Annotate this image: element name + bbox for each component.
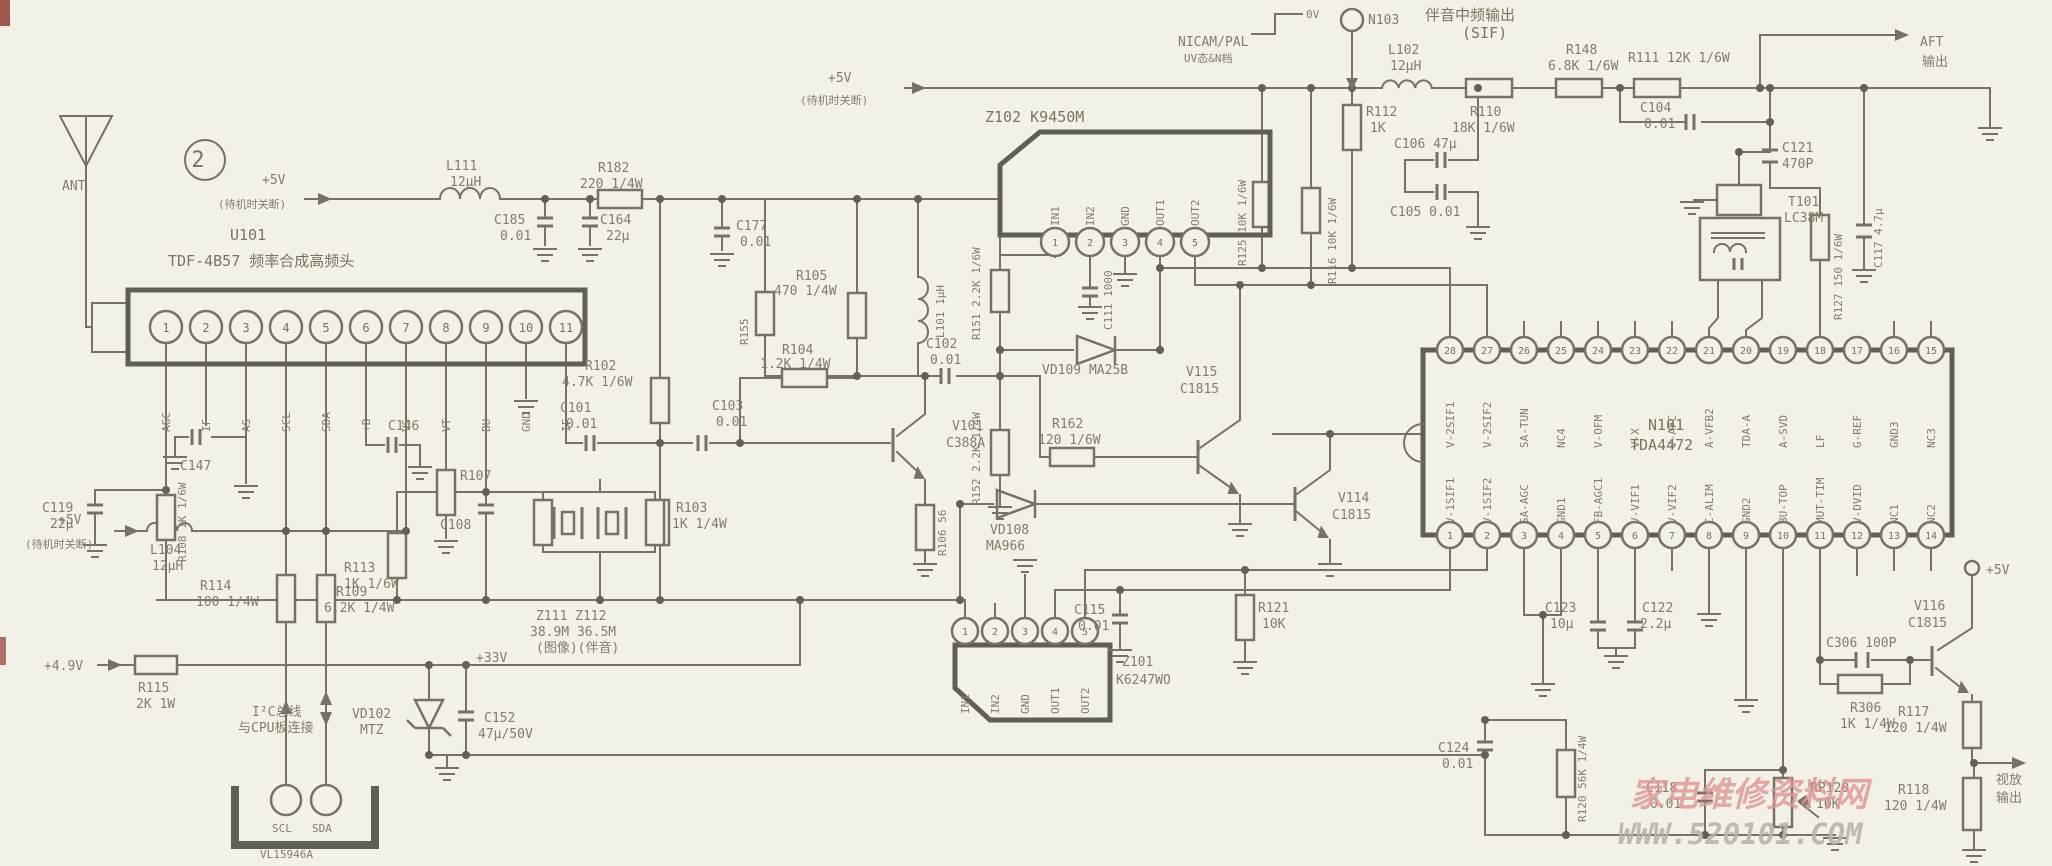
label-l102: L102 <box>1388 43 1419 58</box>
crystal-Z111 <box>554 507 582 539</box>
label-c111: C111 1000 <box>1102 270 1115 330</box>
label-c306: C306 100P <box>1826 636 1897 651</box>
n101-pin-name: V-1SIF2 <box>1481 478 1494 524</box>
tuner-pin-name: +B <box>360 418 373 432</box>
tuner-pin-num: 7 <box>402 321 409 335</box>
watermark-site: 家电维修资料网 <box>1630 775 1873 815</box>
label-r107: R107 <box>460 469 491 484</box>
label-r117: R117 <box>1898 705 1929 720</box>
i2c-connector <box>235 786 375 845</box>
label-r104: R104 <box>782 343 813 358</box>
video-out-label: 输出 <box>1996 790 2022 806</box>
label-r103: R103 <box>676 501 707 516</box>
figure-number: 2 <box>191 148 204 173</box>
n101-pin-num: 5 <box>1595 531 1601 542</box>
zener-VD102 <box>407 700 451 736</box>
label-c124: C124 <box>1438 741 1469 756</box>
label-v116: V116 <box>1914 599 1945 614</box>
label-c164: 22μ <box>606 229 630 244</box>
label-r121: 10K <box>1262 617 1286 632</box>
label-c115: 0.01 <box>1078 619 1109 634</box>
resistor-R110 <box>1466 79 1512 97</box>
label-r104: 1.2K 1/4W <box>760 357 831 372</box>
aft-label: 输出 <box>1922 54 1948 70</box>
n101-pin-num: 10 <box>1777 531 1789 542</box>
connector-pin-sda <box>311 785 341 815</box>
label-c106: C106 47μ <box>1394 137 1457 152</box>
n101-pin-num: 1 <box>1447 531 1453 542</box>
resistor-R182 <box>598 190 642 208</box>
n101-pin-name: C-ALIM <box>1703 484 1716 524</box>
label-c108: C108 <box>440 518 471 533</box>
label-vd102: VD102 <box>352 707 391 722</box>
n101-pin-num: 9 <box>1743 531 1749 542</box>
label-z102: Z102 K9450M <box>985 108 1084 126</box>
n101-pin-name: GND3 <box>1888 422 1901 449</box>
label-r151: R151 2.2K 1/6W <box>970 247 983 340</box>
resistor-R152 <box>991 430 1009 475</box>
label-r112: R112 <box>1366 105 1397 120</box>
label-z101: K6247WO <box>1116 673 1171 688</box>
diode-VD109 <box>1077 336 1115 364</box>
n101-pin-num: 16 <box>1888 346 1900 357</box>
label-l102: 12μH <box>1390 59 1421 74</box>
n101-pin-name: MUT-TIM <box>1814 477 1827 524</box>
tuner-pin-name: SCL <box>280 412 293 432</box>
n101-pin-num: 21 <box>1703 346 1715 357</box>
label-r127: R127 150 1/6W <box>1832 234 1845 320</box>
label-r162: 120 1/6W <box>1038 433 1101 448</box>
label-xtal: (图像)(伴音) <box>536 640 619 656</box>
n101-pin-name: NC4 <box>1555 428 1568 448</box>
n101-pin-name: SA-TUN <box>1518 408 1531 448</box>
z101-pin-name: GND <box>1019 694 1032 714</box>
resistor-R151 <box>991 270 1009 312</box>
n101-pin-num: 7 <box>1669 531 1675 542</box>
label-c101: C101 <box>560 401 591 416</box>
z101-pin-name: OUT1 <box>1049 688 1062 715</box>
n101-pin-num: 25 <box>1555 346 1567 357</box>
n101-pin-name: V-VIF1 <box>1629 484 1642 524</box>
resistor-R115 <box>135 656 177 674</box>
label-c115: C115 <box>1074 603 1105 618</box>
n101-pin-num: 17 <box>1851 346 1863 357</box>
resistor-R148 <box>1556 79 1602 97</box>
resistor-R112 <box>1343 105 1361 150</box>
n101-pin-name: V-2SIF1 <box>1444 402 1457 448</box>
n101-pin-num: 23 <box>1629 346 1641 357</box>
label-t101: LC38M <box>1784 211 1823 226</box>
arrows <box>108 29 2026 769</box>
n103-label: N103 <box>1368 13 1399 28</box>
label-r111: R111 12K 1/6W <box>1628 51 1730 66</box>
components <box>135 79 1981 830</box>
n101-pin-num: 27 <box>1481 346 1493 357</box>
n101-pin-num: 12 <box>1851 531 1863 542</box>
label-vd108: MA966 <box>986 539 1025 554</box>
sif-label: 伴音中频输出 <box>1425 6 1515 24</box>
z102-pin-num: 2 <box>1087 238 1093 249</box>
n101-pin-name: FB-AGC1 <box>1592 478 1605 524</box>
aft-label: AFT <box>1920 35 1944 50</box>
label-c147: C147 <box>180 459 211 474</box>
tuner-pin-name: GND <box>520 412 533 432</box>
label-c102: 0.01 <box>930 353 961 368</box>
inductor-L102 <box>1382 80 1432 88</box>
n101-pin-num: 15 <box>1925 346 1937 357</box>
n101-pin-name: A-SVD <box>1777 415 1790 448</box>
tuner-pin-num: 3 <box>242 321 249 335</box>
label-r112: 1K <box>1370 121 1386 136</box>
label-vd109: VD109 MA25B <box>1042 363 1128 378</box>
tuner-pin-num: 4 <box>282 321 289 335</box>
label-r110: R110 <box>1470 105 1501 120</box>
resistor-R118 <box>1963 778 1981 830</box>
resistor-R117 <box>1963 702 1981 748</box>
antenna-symbol <box>60 116 112 327</box>
label-c105: C105 0.01 <box>1390 205 1460 220</box>
z102-pin-name: IN1 <box>1049 206 1062 226</box>
label-r113: R113 <box>344 561 375 576</box>
label-r103: 1K 1/4W <box>672 517 727 532</box>
label-t101: T101 <box>1788 195 1819 210</box>
tuner-pin-num: 8 <box>442 321 449 335</box>
inductor-L101 <box>918 277 928 343</box>
resistor <box>646 500 664 545</box>
n101-pin-name: V-VIF2 <box>1666 484 1679 524</box>
label-r162: R162 <box>1052 417 1083 432</box>
nicam-level: 0V <box>1306 8 1320 21</box>
schematic-page: 1 2 3 4 5 6 7 8 9 10 11 1 2 3 4 5 1 2 3 … <box>0 0 2052 866</box>
n101-pin-name: V-AFC <box>1666 415 1679 448</box>
scan-artifact <box>0 0 10 26</box>
resistor-R106 <box>916 505 934 550</box>
label-r105: 470 1/4W <box>774 284 837 299</box>
aft-arrow <box>1895 29 1909 41</box>
sif-label: (SIF) <box>1462 24 1507 42</box>
label-v116: C1815 <box>1908 616 1947 631</box>
ic-notch <box>1404 424 1423 462</box>
z101-pin-num: 3 <box>1022 627 1028 638</box>
n101-pin-num: 18 <box>1814 346 1826 357</box>
z101-pin-num: 1 <box>962 627 968 638</box>
label-l101: L101 1μH <box>934 285 947 338</box>
v5-note: (待机时关断) <box>25 537 93 551</box>
n101-pin-name: NC3 <box>1925 428 1938 448</box>
label-l111: 12μH <box>450 175 481 190</box>
n101-pin-name: V-DVID <box>1851 484 1864 524</box>
crystal-Z112 <box>598 507 626 539</box>
testpoint-N103 <box>1341 9 1363 31</box>
n101-pin-num: 19 <box>1777 346 1789 357</box>
tuner-pin-num: 2 <box>202 321 209 335</box>
label-c164: C164 <box>600 213 631 228</box>
schematic-canvas: 1 2 3 4 5 6 7 8 9 10 11 1 2 3 4 5 1 2 3 … <box>0 0 2052 866</box>
n101-pin-num: 8 <box>1706 531 1712 542</box>
label-v115: C1815 <box>1180 382 1219 397</box>
n101-pin-name: V-1SIF1 <box>1444 478 1457 524</box>
ant-label: ANT <box>62 179 86 194</box>
watermark: 家电维修资料网 WWW.520101.COM <box>1618 775 1873 851</box>
label-c177: C177 <box>736 219 767 234</box>
watermark-url: WWW.520101.COM <box>1618 817 1864 851</box>
label-c123: 10μ <box>1550 617 1574 632</box>
label-c152: C152 <box>484 711 515 726</box>
tuner-pin-num: 6 <box>362 321 369 335</box>
label-r120: R120 56K 1/4W <box>1576 736 1589 822</box>
label-vd102: MTZ <box>360 723 384 738</box>
label-z101: Z101 <box>1122 655 1153 670</box>
v33-label: +33V <box>476 651 507 666</box>
n101-pin-name: NC2 <box>1925 504 1938 524</box>
resistor-R109 <box>388 533 406 578</box>
label-r109: 6.2K 1/4W <box>324 601 395 616</box>
label-l104: 12μH <box>152 559 183 574</box>
tuner-pin-num: 11 <box>559 321 573 335</box>
z102-pin-num: 4 <box>1157 238 1163 249</box>
label-r115: 2K 1W <box>136 697 175 712</box>
video-out-arrow <box>2012 757 2026 769</box>
resistor <box>534 500 552 545</box>
tuner-pin-name: VT <box>440 418 453 432</box>
label-c119: C119 <box>42 501 73 516</box>
label-r121: R121 <box>1258 601 1289 616</box>
nicam-sub: UV态&N档 <box>1184 51 1233 65</box>
v5-label: +5V <box>828 71 852 86</box>
n101-pin-num: 11 <box>1814 531 1826 542</box>
n101-pin-num: 20 <box>1740 346 1752 357</box>
label-r155: R155 <box>738 319 751 346</box>
n101-pin-name: NC1 <box>1888 504 1901 524</box>
v5-note: (待机时关断) <box>218 197 286 211</box>
label-r102: 4.7K 1/6W <box>562 375 633 390</box>
label-r114: 100 1/4W <box>196 595 259 610</box>
label-l104: L104 <box>150 543 181 558</box>
n101-pin-num: 3 <box>1521 531 1527 542</box>
label-l111: L111 <box>446 159 477 174</box>
n101-pin-num: 4 <box>1558 531 1564 542</box>
label-r117: 120 1/4W <box>1884 721 1947 736</box>
tuner-pin-name: IF <box>560 419 573 432</box>
tuner-pin-name: AS <box>240 419 253 432</box>
label-c177: 0.01 <box>740 235 771 250</box>
resistor-R105 <box>848 293 866 338</box>
label-vd108: VD108 <box>990 523 1029 538</box>
tuner-pin-name: AGC <box>160 412 173 432</box>
label-r109: R109 <box>336 585 367 600</box>
label-v114: C1815 <box>1332 508 1371 523</box>
label-r152: R152 2.2K 1/4W <box>970 412 983 505</box>
label-c185: C185 <box>494 213 525 228</box>
i2c-note: I²C总线 <box>252 705 301 720</box>
z102-pin-num: 1 <box>1052 238 1058 249</box>
z101-pin-name: OUT2 <box>1079 688 1092 715</box>
resistor-R111 <box>1634 79 1680 97</box>
label-r182: 220 1/4W <box>580 177 643 192</box>
labels: 2 ANT U101 TDF-4B57 频率合成高频头 +5V (待机时关断) … <box>25 6 2022 861</box>
label-r114: R114 <box>200 579 231 594</box>
sda-arrow-down <box>320 712 332 726</box>
tuner-pin-name: SDA <box>320 412 333 432</box>
z102-pin-name: GND <box>1119 206 1132 226</box>
label-c121: C121 <box>1782 141 1813 156</box>
label-v115: V115 <box>1186 365 1217 380</box>
tuner-pin-num: 1 <box>162 321 169 335</box>
v5term-label: +5V <box>1986 563 2010 578</box>
resistor-R107 <box>437 470 455 515</box>
resistor-R155 <box>756 292 774 335</box>
label-c122: C122 <box>1642 601 1673 616</box>
tuner-pin-num: 10 <box>519 321 533 335</box>
resistor-R102 <box>651 378 669 423</box>
n101-pin-name: V-2SIF2 <box>1481 402 1494 448</box>
label-c124: 0.01 <box>1442 757 1473 772</box>
n101-pin-name: GND2 <box>1740 498 1753 525</box>
label-c102: C102 <box>926 337 957 352</box>
label-r125: R125 10K 1/6W <box>1236 180 1249 266</box>
n101-pin-name: A-VFB2 <box>1703 408 1716 448</box>
n101-pin-name: G-REF <box>1851 415 1864 448</box>
video-out-label: 视放 <box>1996 773 2022 788</box>
wires <box>60 14 2012 848</box>
label-c121: 470P <box>1782 157 1813 172</box>
label-c122: 2.2μ <box>1640 617 1671 632</box>
z101-pin-name: IN2 <box>989 694 1002 714</box>
z102-pin-name: OUT1 <box>1154 200 1167 227</box>
tuner-pin-name: VS <box>400 419 413 432</box>
label-c104: C104 <box>1640 101 1671 116</box>
v5-label: +5V <box>262 173 286 188</box>
label-c103: 0.01 <box>716 415 747 430</box>
label-xtal: 38.9M 36.5M <box>530 625 616 640</box>
resistor-R114 <box>277 575 295 622</box>
n101-pin-name: V-OFM <box>1592 415 1605 448</box>
z102-pin-name: IN2 <box>1084 206 1097 226</box>
z102-pin-num: 3 <box>1122 238 1128 249</box>
scl-label: SCL <box>272 822 292 835</box>
plus5v-terminal <box>1965 561 1979 575</box>
z101-pin-name: IN1 <box>959 694 972 714</box>
n101-pin-name: GND1 <box>1555 498 1568 525</box>
label-r148: R148 <box>1566 43 1597 58</box>
label-v114: V114 <box>1338 491 1369 506</box>
n101-pin-num: 28 <box>1444 346 1456 357</box>
label-r118: R118 <box>1898 783 1929 798</box>
v5-note: (待机时关断) <box>800 93 868 107</box>
n101-pin-name: LF <box>1814 435 1827 448</box>
z101-pin-num: 2 <box>992 627 998 638</box>
label-r306: R306 <box>1850 701 1881 716</box>
n101-pin-num: 22 <box>1666 346 1678 357</box>
label-xtal: Z111 Z112 <box>536 609 606 624</box>
label-c117: C117 4.7μ <box>1872 208 1885 268</box>
n101-pin-num: 26 <box>1518 346 1530 357</box>
nicam-label: NICAM/PAL <box>1178 35 1249 50</box>
tuner-pin-num: 5 <box>322 321 329 335</box>
label-c119: 22μ <box>50 517 74 532</box>
n101-pin-num: 2 <box>1484 531 1490 542</box>
label-r115: R115 <box>138 681 169 696</box>
resistor-R108 <box>157 495 175 540</box>
resistor-R306 <box>1838 675 1882 693</box>
tuner-ref: U101 <box>230 226 266 244</box>
label-c104: 0.01 <box>1644 117 1675 132</box>
resistor-R162 <box>1050 448 1094 466</box>
connector-sub: VL15946A <box>260 848 313 861</box>
z101-pin-num: 4 <box>1052 627 1058 638</box>
label-r106: R106 56 <box>936 510 949 556</box>
n101-pin-name: SA-AGC <box>1518 484 1531 524</box>
n101-pin-num: 14 <box>1925 531 1937 542</box>
resistor-R120 <box>1557 750 1575 797</box>
n101-pin-name: BU-TOP <box>1777 484 1790 524</box>
n101-pin-name: TDA-A <box>1740 415 1753 448</box>
n101-pin-name: V-X <box>1629 428 1642 448</box>
tuner-desc: TDF-4B57 频率合成高频头 <box>168 252 354 270</box>
sda-arrow-up <box>320 691 332 705</box>
n101-pin-num: 6 <box>1632 531 1638 542</box>
v49-label: +4.9V <box>44 659 83 674</box>
z102-pin-num: 5 <box>1192 238 1198 249</box>
label-c185: 0.01 <box>500 229 531 244</box>
saw-filter-Z102 <box>1000 132 1270 235</box>
z102-pin-name: OUT2 <box>1189 200 1202 227</box>
label-c103: C103 <box>712 399 743 414</box>
tuner-pin-num: 9 <box>482 321 489 335</box>
sda-label: SDA <box>312 822 332 835</box>
label-r105: R105 <box>796 269 827 284</box>
tuner-pin-name: IF <box>200 419 213 432</box>
resistor-R116 <box>1302 188 1320 233</box>
tuner-pin-name: BU <box>480 419 493 432</box>
label-r116: R116 10K 1/6W <box>1326 198 1339 284</box>
label-c123: C123 <box>1545 601 1576 616</box>
scan-artifact <box>0 637 6 665</box>
connector-pin-scl <box>271 785 301 815</box>
label-r182: R182 <box>598 161 629 176</box>
label-r110: 18K 1/6W <box>1452 121 1515 136</box>
label-r148: 6.8K 1/6W <box>1548 59 1619 74</box>
label-r102: R102 <box>585 359 616 374</box>
resistor-R121 <box>1236 595 1254 640</box>
i2c-note: 与CPU板连接 <box>238 720 313 736</box>
label-r118: 120 1/4W <box>1884 799 1947 814</box>
label-c152: 47μ/50V <box>478 727 533 742</box>
n101-pin-num: 13 <box>1888 531 1900 542</box>
n101-pin-num: 24 <box>1592 346 1604 357</box>
